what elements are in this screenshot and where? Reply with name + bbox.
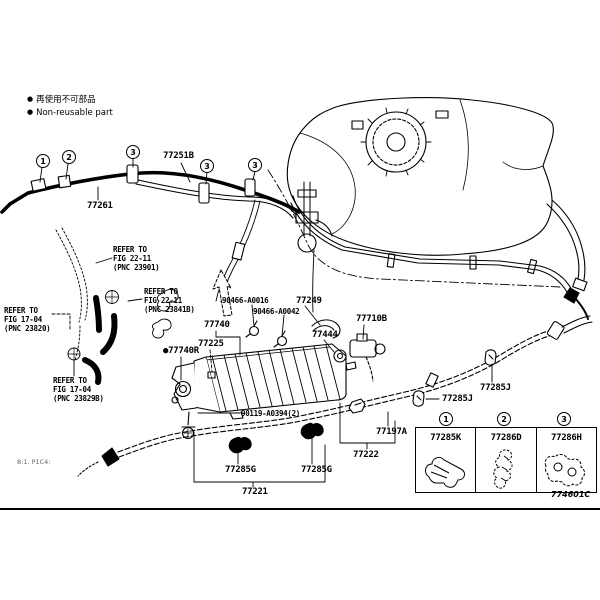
part-label-77740: 77740: [204, 320, 230, 330]
clamp-77286d-icon: [477, 447, 533, 489]
parts-diagram-canvas: ●再使用不可部品 ●Non-reusable part 1 2 3 3 3 77…: [0, 0, 600, 600]
part-label-77444: 77444: [312, 330, 338, 340]
diagram-code: 774601C: [551, 490, 590, 499]
inset-circle-3: 3: [557, 412, 571, 426]
part-label-77222: 77222: [353, 450, 379, 460]
part-label-77285j-a: 77285J: [480, 383, 511, 393]
refer-note-1: REFER TOFIG 22-11(PNC 23901): [113, 246, 159, 272]
refer-note-4: REFER TOFIG 17-04(PNC 23829B): [53, 377, 104, 403]
part-label-77285k: 77285K: [416, 433, 475, 443]
frame-bottom-border: [0, 508, 600, 510]
refer-note-2: REFER TOFIG 22-11(PNC 23841B): [144, 288, 195, 314]
body-reference-line: [268, 170, 560, 287]
nonreusable-bullet-icon: ●: [27, 108, 33, 116]
part-label-77225: 77225: [198, 339, 224, 349]
inset-circle-1: 1: [439, 412, 453, 426]
part-label-77197a: 77197A: [376, 427, 407, 437]
clamp-inset-box: 77285K 77286D 77286H: [415, 427, 597, 493]
part-label-77251b: 77251B: [163, 151, 194, 161]
callout-circle-2: 2: [62, 150, 76, 164]
callout-circle-3a: 3: [126, 145, 140, 159]
part-label-77740r: ●77740R: [163, 346, 199, 356]
clamp-77286h-icon: [538, 447, 594, 489]
part-label-77710b: 77710B: [356, 314, 387, 324]
part-label-77285g-a: 77285G: [225, 465, 256, 475]
part-label-90466-a0016: 90466-A0016: [222, 296, 268, 305]
callout-circle-1: 1: [36, 154, 50, 168]
part-label-77285g-b: 77285G: [301, 465, 332, 475]
footer-note: 8:1. P1C4:: [17, 458, 51, 466]
inset-circle-2: 2: [497, 412, 511, 426]
inset-cell-77285k: 77285K: [416, 428, 476, 492]
part-label-77221: 77221: [242, 487, 268, 497]
callout-circle-3c: 3: [248, 158, 262, 172]
part-label-77285j-b: 77285J: [442, 394, 473, 404]
inset-cell-77286d: 77286D: [476, 428, 536, 492]
charcoal-canister: [172, 344, 356, 439]
refer-note-3: REFER TOFIG 17-04(PNC 23820): [4, 307, 50, 333]
inset-cell-77286h: 77286H: [537, 428, 596, 492]
nonreusable-bullet-icon: ●: [27, 95, 33, 103]
part-label-90119-a0394: 90119-A0394(2): [241, 409, 300, 418]
clamp-77285k-icon: [417, 447, 473, 489]
part-label-77249: 77249: [296, 296, 322, 306]
callout-circle-3b: 3: [200, 159, 214, 173]
part-label-90466-a0042: 90466-A0042: [253, 307, 299, 316]
part-label-77286d: 77286D: [476, 433, 535, 443]
legend-line-en: ●Non-reusable part: [27, 106, 113, 119]
part-label-77261: 77261: [87, 201, 113, 211]
part-label-77286h: 77286H: [537, 433, 596, 443]
legend-line-jp: ●再使用不可部品: [27, 93, 113, 106]
legend: ●再使用不可部品 ●Non-reusable part: [27, 93, 113, 119]
fuel-tank-outline: [287, 98, 588, 319]
